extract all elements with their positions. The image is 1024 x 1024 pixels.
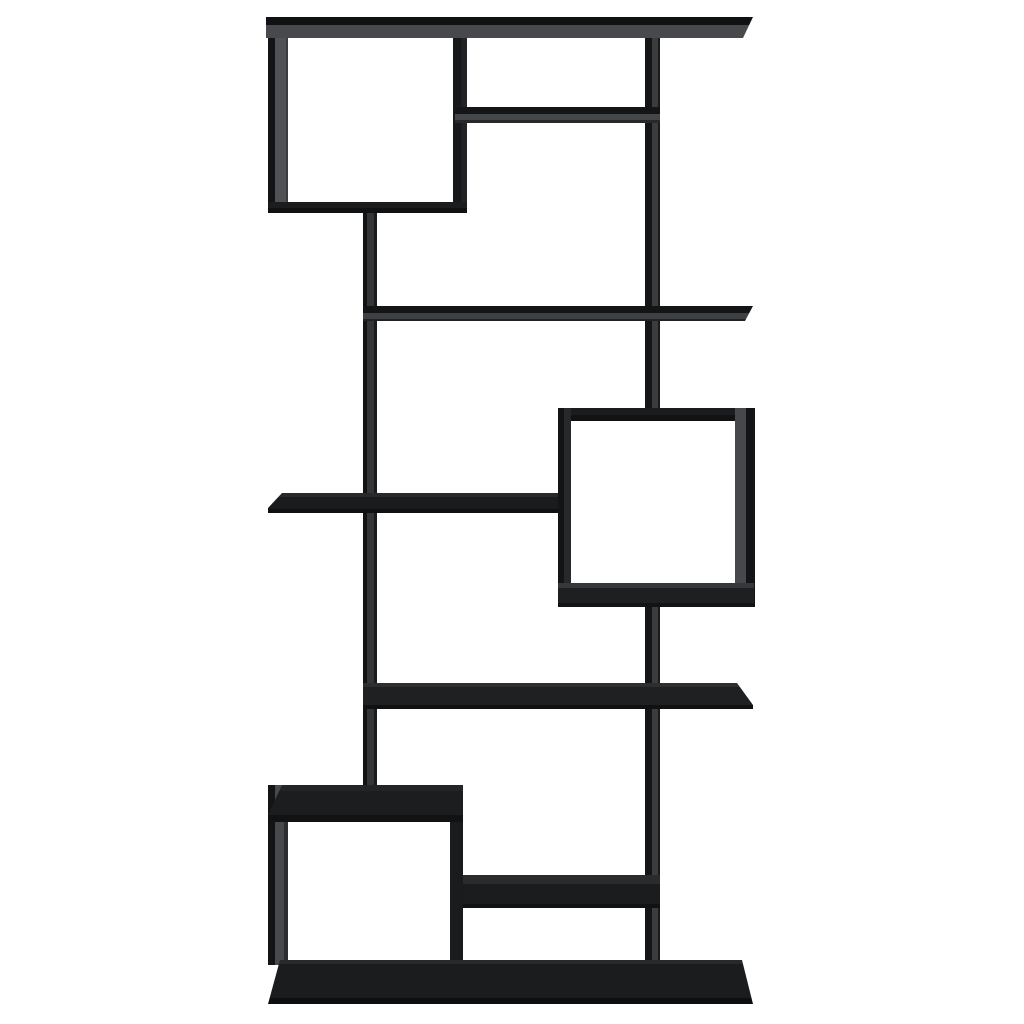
right-post-upper bbox=[645, 17, 660, 415]
second-shelf bbox=[363, 306, 753, 321]
cube2-left-wall bbox=[558, 408, 571, 607]
top-shelf bbox=[266, 17, 753, 38]
fourth-shelf bbox=[363, 683, 753, 709]
cube1-left-wall bbox=[268, 17, 288, 213]
lower-right-shelf bbox=[463, 875, 660, 908]
cube1-bottom-panel bbox=[268, 202, 467, 213]
cube3-top-panel bbox=[268, 785, 463, 822]
middle-left-shelf bbox=[268, 493, 558, 513]
upper-right-shelf bbox=[455, 107, 660, 123]
bookshelf-product-photo bbox=[0, 0, 1024, 1024]
cube2-right-wall bbox=[735, 408, 755, 607]
cube2-bottom-panel bbox=[558, 583, 754, 607]
cube2-top-panel bbox=[558, 408, 754, 421]
right-post-lower bbox=[645, 597, 660, 965]
base-plinth bbox=[268, 960, 753, 1004]
